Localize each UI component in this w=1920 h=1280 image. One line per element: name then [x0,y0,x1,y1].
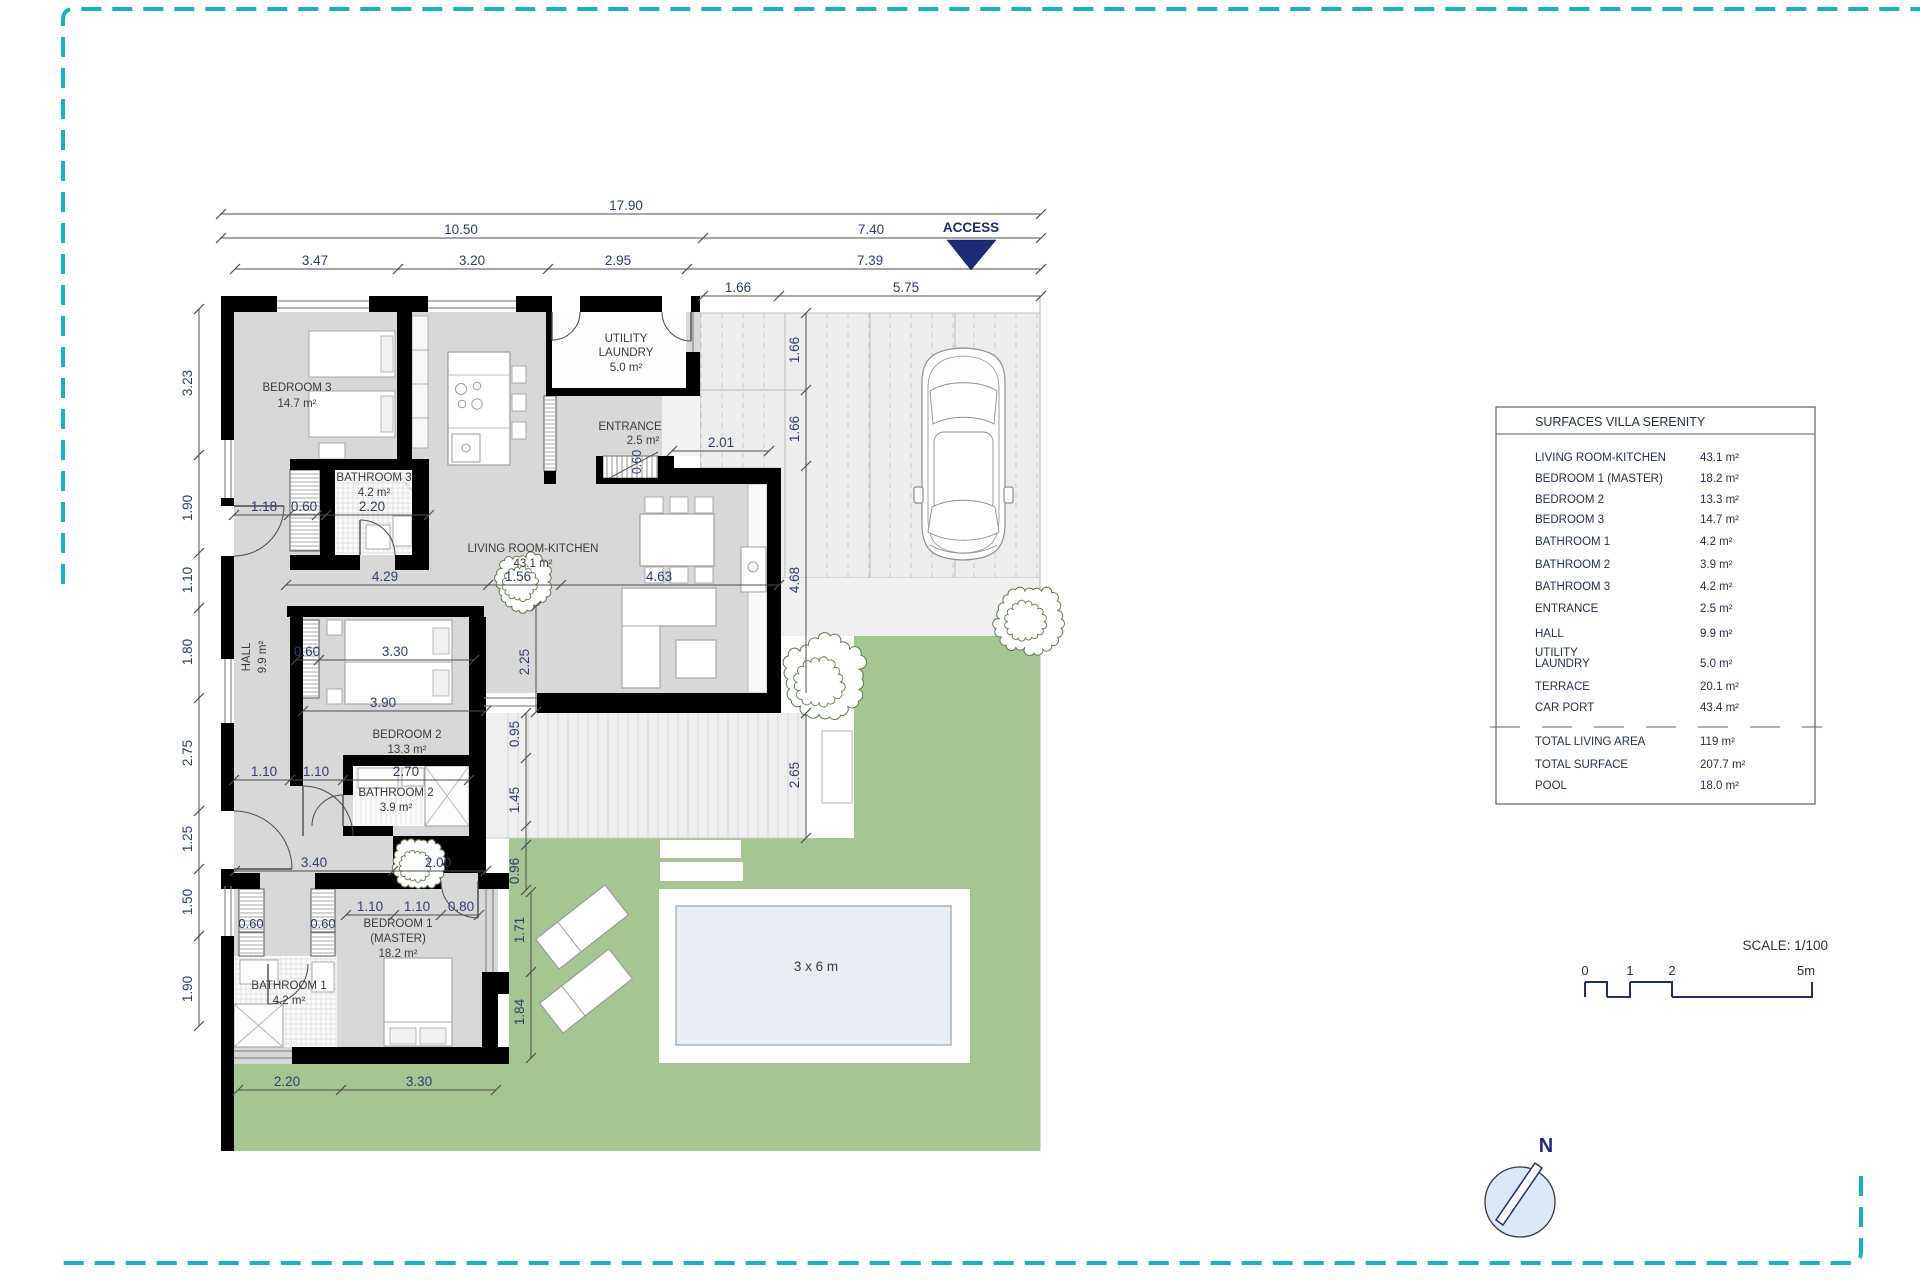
svg-text:CAR PORT: CAR PORT [1535,702,1594,714]
svg-text:TOTAL SURFACE: TOTAL SURFACE [1535,759,1628,771]
svg-text:UTILITY: UTILITY [605,333,648,345]
svg-text:1.50: 1.50 [180,889,195,915]
svg-text:5m: 5m [1797,963,1815,978]
svg-text:0.60: 0.60 [294,644,320,659]
svg-text:3 x 6 m: 3 x 6 m [794,959,838,974]
svg-text:1.66: 1.66 [787,416,802,442]
svg-text:LIVING ROOM-KITCHEN: LIVING ROOM-KITCHEN [468,543,599,555]
svg-text:0.60: 0.60 [310,916,335,931]
svg-text:1.90: 1.90 [180,495,195,521]
svg-text:2.20: 2.20 [274,1074,300,1089]
svg-text:2.01: 2.01 [708,435,734,450]
svg-text:1.10: 1.10 [404,899,430,914]
svg-text:2.65: 2.65 [787,762,802,788]
svg-text:ACCESS: ACCESS [943,220,999,235]
svg-text:1.66: 1.66 [725,280,751,295]
svg-text:1.71: 1.71 [512,917,527,943]
svg-text:(MASTER): (MASTER) [370,933,426,945]
svg-text:5.0 m²: 5.0 m² [1700,658,1733,670]
svg-text:LAUNDRY: LAUNDRY [1535,658,1590,670]
svg-text:0.60: 0.60 [630,450,644,474]
svg-text:9.9 m²: 9.9 m² [257,641,269,674]
svg-text:3.23: 3.23 [180,370,195,396]
svg-text:1.84: 1.84 [512,998,527,1025]
svg-text:BATHROOM 3: BATHROOM 3 [336,472,411,484]
svg-text:9.9 m²: 9.9 m² [1700,628,1733,640]
svg-text:BEDROOM 2: BEDROOM 2 [1535,494,1604,506]
svg-text:7.39: 7.39 [857,253,883,268]
svg-text:BATHROOM 3: BATHROOM 3 [1535,581,1610,593]
svg-text:2.25: 2.25 [517,649,532,675]
svg-text:5.0 m²: 5.0 m² [610,362,643,374]
svg-text:BEDROOM 3: BEDROOM 3 [262,382,331,394]
svg-text:2.5 m²: 2.5 m² [627,435,660,447]
svg-text:0.96: 0.96 [507,858,522,884]
svg-text:TERRACE: TERRACE [1535,681,1590,693]
svg-text:TOTAL LIVING AREA: TOTAL LIVING AREA [1535,736,1646,748]
svg-text:4.63: 4.63 [646,569,672,584]
svg-text:BEDROOM 1: BEDROOM 1 [363,918,432,930]
svg-text:LAUNDRY: LAUNDRY [599,347,654,359]
svg-text:4.2 m²: 4.2 m² [358,487,391,499]
svg-text:BEDROOM 1 (MASTER): BEDROOM 1 (MASTER) [1535,473,1663,485]
svg-text:3.30: 3.30 [382,644,408,659]
svg-text:2.00: 2.00 [425,855,451,870]
svg-text:119 m²: 119 m² [1700,736,1735,748]
svg-text:POOL: POOL [1535,780,1568,792]
svg-text:13.3 m²: 13.3 m² [388,744,427,756]
svg-text:BATHROOM 1: BATHROOM 1 [251,980,326,992]
svg-text:4.2 m²: 4.2 m² [1700,536,1733,548]
svg-text:18.2 m²: 18.2 m² [1700,473,1739,485]
svg-text:207.7 m²: 207.7 m² [1700,759,1746,771]
svg-text:1.10: 1.10 [251,764,277,779]
svg-text:2.95: 2.95 [605,253,631,268]
svg-text:1.80: 1.80 [180,639,195,665]
svg-text:1.10: 1.10 [180,567,195,593]
svg-text:18.2 m²: 18.2 m² [379,948,418,960]
svg-text:3.90: 3.90 [370,695,396,710]
svg-text:BEDROOM 3: BEDROOM 3 [1535,514,1604,526]
svg-text:20.1 m²: 20.1 m² [1700,681,1739,693]
svg-text:7.40: 7.40 [858,222,884,237]
svg-text:BATHROOM 2: BATHROOM 2 [358,787,433,799]
svg-text:BEDROOM 2: BEDROOM 2 [372,729,441,741]
svg-text:5.75: 5.75 [893,280,919,295]
svg-text:14.7 m²: 14.7 m² [1700,514,1739,526]
svg-text:HALL: HALL [241,642,253,671]
svg-text:43.1 m²: 43.1 m² [1700,452,1739,464]
svg-text:HALL: HALL [1535,628,1564,640]
svg-text:N: N [1539,1135,1553,1157]
svg-text:1.90: 1.90 [180,976,195,1002]
svg-text:43.4 m²: 43.4 m² [1700,702,1739,714]
svg-text:4.2 m²: 4.2 m² [273,995,306,1007]
svg-text:2.70: 2.70 [393,764,419,779]
svg-text:1.10: 1.10 [303,764,329,779]
svg-text:ENTRANCE: ENTRANCE [1535,603,1599,615]
svg-text:3.20: 3.20 [459,253,485,268]
svg-text:18.0 m²: 18.0 m² [1700,780,1739,792]
svg-text:1.10: 1.10 [357,899,383,914]
svg-text:3.40: 3.40 [301,855,327,870]
svg-text:2.20: 2.20 [359,499,385,514]
svg-text:10.50: 10.50 [444,222,478,237]
svg-text:1.18: 1.18 [251,499,277,514]
svg-text:2.75: 2.75 [180,740,195,766]
svg-text:1.25: 1.25 [180,826,195,852]
svg-text:BATHROOM 2: BATHROOM 2 [1535,559,1610,571]
svg-text:1.56: 1.56 [505,569,531,584]
svg-text:3.9 m²: 3.9 m² [1700,559,1733,571]
svg-text:17.90: 17.90 [609,198,643,213]
svg-text:3.47: 3.47 [302,253,328,268]
svg-text:3.30: 3.30 [406,1074,432,1089]
svg-text:13.3 m²: 13.3 m² [1700,494,1739,506]
svg-text:SCALE: 1/100: SCALE: 1/100 [1742,938,1828,953]
svg-text:LIVING ROOM-KITCHEN: LIVING ROOM-KITCHEN [1535,452,1666,464]
svg-text:0: 0 [1581,963,1588,978]
svg-text:1.45: 1.45 [507,787,522,813]
svg-text:BATHROOM 1: BATHROOM 1 [1535,536,1610,548]
svg-text:0.60: 0.60 [291,499,317,514]
svg-text:0.60: 0.60 [238,916,263,931]
svg-text:1.66: 1.66 [787,337,802,363]
svg-text:14.7 m²: 14.7 m² [278,398,317,410]
svg-text:4.68: 4.68 [787,567,802,593]
svg-text:ENTRANCE: ENTRANCE [598,421,662,433]
svg-text:3.9 m²: 3.9 m² [380,802,413,814]
svg-text:2: 2 [1668,963,1675,978]
svg-text:2.5 m²: 2.5 m² [1700,603,1733,615]
svg-text:1: 1 [1626,963,1633,978]
svg-text:0.80: 0.80 [448,899,474,914]
svg-text:SURFACES VILLA SERENITY: SURFACES VILLA SERENITY [1535,415,1706,429]
svg-text:0.95: 0.95 [507,721,522,747]
svg-text:43.1 m²: 43.1 m² [514,558,553,570]
svg-text:4.29: 4.29 [372,569,398,584]
svg-text:4.2 m²: 4.2 m² [1700,581,1733,593]
